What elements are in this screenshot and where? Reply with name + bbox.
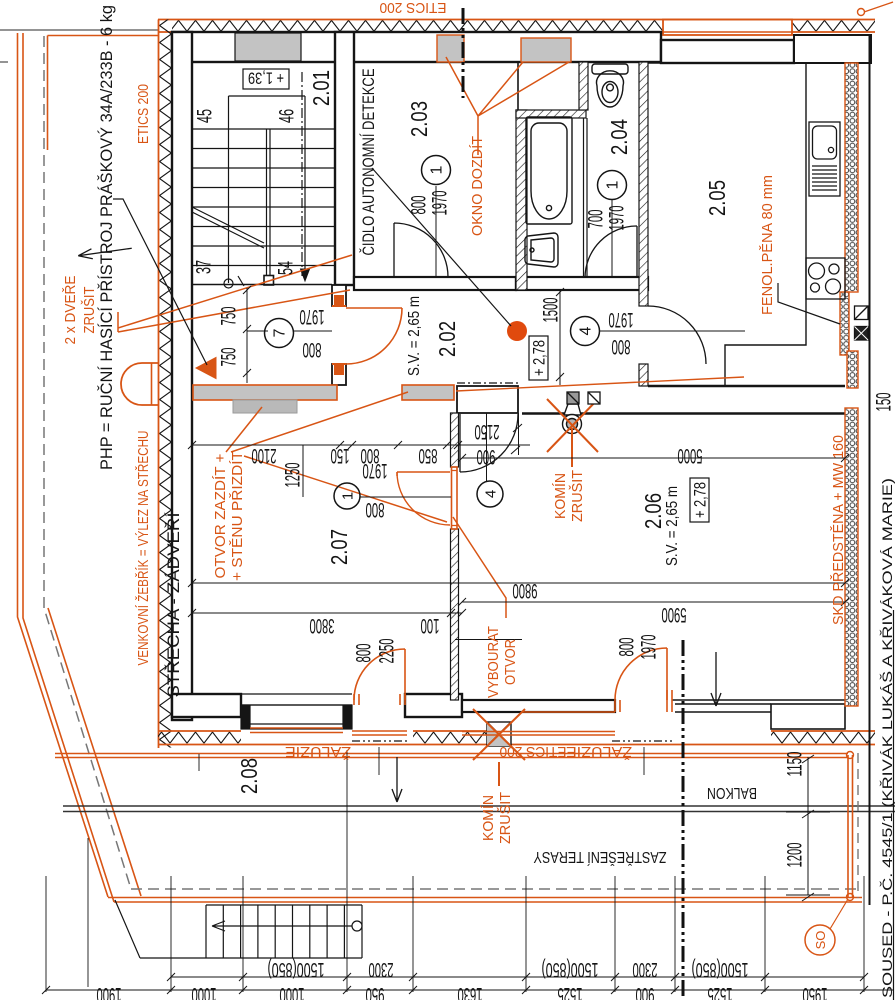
svg-text:1150: 1150 (784, 752, 807, 777)
svg-text:VYBOURAT: VYBOURAT (485, 626, 502, 698)
svg-text:FENOL.PĚNA 80 mm: FENOL.PĚNA 80 mm (759, 175, 776, 315)
svg-text:2.07: 2.07 (326, 529, 352, 565)
svg-text:+ 2,78: + 2,78 (530, 340, 549, 376)
svg-text:PHP = RUČNÍ HASÍCÍ PŘÍSTROJ PR: PHP = RUČNÍ HASÍCÍ PŘÍSTROJ PRÁŠKOVÝ 34A… (97, 5, 116, 470)
svg-text:1000: 1000 (192, 983, 217, 1000)
svg-text:3800: 3800 (310, 614, 335, 637)
svg-text:2.06: 2.06 (640, 493, 666, 529)
svg-text:1525: 1525 (558, 983, 583, 1000)
svg-text:ZRUŠIT: ZRUŠIT (569, 470, 586, 522)
svg-text:OKNO DOZDÍT: OKNO DOZDÍT (469, 136, 486, 236)
svg-text:1000: 1000 (280, 983, 305, 1000)
svg-text:ETICS 200: ETICS 200 (380, 0, 447, 16)
svg-text:1: 1 (429, 165, 446, 174)
svg-text:900: 900 (636, 983, 655, 1000)
svg-text:2250: 2250 (376, 639, 399, 664)
svg-text:ZASTŘEŠENÍ TERASY: ZASTŘEŠENÍ TERASY (533, 848, 666, 867)
svg-text:1500(850): 1500(850) (692, 958, 749, 981)
svg-text:OTVOR ZAZDÍT +: OTVOR ZAZDÍT + (212, 454, 229, 579)
svg-text:1970: 1970 (609, 308, 634, 331)
svg-text:2300: 2300 (633, 958, 658, 981)
svg-text:+ 1,39: + 1,39 (248, 69, 284, 88)
svg-text:1500(850): 1500(850) (268, 958, 325, 981)
svg-text:800: 800 (616, 638, 639, 657)
svg-text:150: 150 (873, 393, 895, 412)
svg-text:2.04: 2.04 (606, 119, 632, 155)
svg-text:1630: 1630 (458, 983, 483, 1000)
svg-text:2300: 2300 (369, 958, 394, 981)
svg-text:2.01: 2.01 (308, 70, 334, 106)
svg-text:2150: 2150 (475, 420, 500, 443)
svg-text:950: 950 (366, 983, 385, 1000)
svg-text:750: 750 (218, 348, 241, 367)
svg-text:800: 800 (353, 644, 376, 663)
svg-text:ETICS 200: ETICS 200 (500, 743, 567, 760)
svg-text:SKD PŘEDSTĚNA + MW 160: SKD PŘEDSTĚNA + MW 160 (830, 435, 847, 625)
svg-text:2.08: 2.08 (236, 758, 262, 794)
svg-text:700: 700 (585, 210, 608, 229)
svg-text:800: 800 (612, 335, 631, 358)
svg-text:+ STĚNU PŘIZDÍT: + STĚNU PŘIZDÍT (229, 451, 246, 581)
svg-text:1: 1 (605, 180, 622, 189)
svg-text:SO: SO (813, 931, 828, 950)
svg-text:2 x DVEŘE: 2 x DVEŘE (62, 276, 79, 345)
svg-text:1950: 1950 (803, 983, 828, 1000)
svg-text:KOMÍN: KOMÍN (552, 473, 569, 519)
svg-text:SOUSED - P.Č. 4545/1 (KŘIVÁK L: SOUSED - P.Č. 4545/1 (KŘIVÁK LUKÁŠ A KŘI… (879, 478, 895, 998)
svg-text:800: 800 (303, 338, 322, 361)
svg-text:5900: 5900 (662, 603, 687, 626)
svg-text:45: 45 (194, 109, 217, 123)
svg-text:2.05: 2.05 (704, 180, 730, 216)
svg-text:4: 4 (578, 326, 595, 335)
svg-text:1500: 1500 (540, 298, 563, 323)
svg-text:S.V. = 2,65 m: S.V. = 2,65 m (406, 296, 423, 376)
svg-text:KOMÍN: KOMÍN (480, 795, 497, 841)
svg-text:1500(850): 1500(850) (542, 958, 599, 981)
svg-text:100: 100 (421, 614, 440, 637)
svg-text:800: 800 (366, 498, 385, 521)
svg-text:BALKON: BALKON (707, 784, 757, 801)
svg-text:ŽALUZIE: ŽALUZIE (566, 743, 632, 760)
svg-text:4: 4 (483, 490, 500, 498)
svg-text:37: 37 (193, 260, 216, 274)
svg-text:1970: 1970 (606, 206, 629, 231)
svg-text:7: 7 (272, 328, 289, 337)
svg-text:1970: 1970 (638, 635, 661, 660)
svg-text:1: 1 (340, 492, 357, 500)
svg-text:ZRUŠIT: ZRUŠIT (497, 792, 514, 844)
svg-text:1970: 1970 (363, 459, 388, 482)
svg-text:2.02: 2.02 (434, 321, 460, 357)
svg-text:2.03: 2.03 (406, 101, 432, 137)
svg-text:STŘECHA - ZÁDVEŘÍ: STŘECHA - ZÁDVEŘÍ (164, 512, 183, 697)
svg-text:ČIDLO AUTONOMNÍ DETEKCE: ČIDLO AUTONOMNÍ DETEKCE (359, 69, 378, 256)
svg-text:900: 900 (477, 445, 496, 468)
svg-text:150: 150 (331, 444, 350, 467)
svg-text:+ 2,78: + 2,78 (691, 482, 710, 518)
svg-text:5000: 5000 (678, 444, 703, 467)
svg-text:2100: 2100 (252, 444, 277, 467)
svg-text:9800: 9800 (513, 579, 538, 602)
svg-text:OTVOR: OTVOR (502, 639, 519, 685)
svg-text:850: 850 (419, 444, 438, 467)
svg-text:54: 54 (275, 261, 298, 275)
svg-text:46: 46 (276, 109, 299, 123)
svg-text:800: 800 (408, 196, 431, 215)
svg-text:1200: 1200 (784, 843, 807, 868)
svg-text:1525: 1525 (708, 983, 733, 1000)
svg-text:1900: 1900 (97, 983, 122, 1000)
svg-text:S.V. = 2,65 m: S.V. = 2,65 m (664, 486, 681, 566)
svg-text:1250: 1250 (282, 463, 305, 488)
svg-text:1970: 1970 (429, 191, 452, 216)
svg-text:750: 750 (218, 307, 241, 326)
svg-text:VENKOVNÍ ŽEBŘÍK = VÝLEZ NA STŘ: VENKOVNÍ ŽEBŘÍK = VÝLEZ NA STŘECHU (135, 431, 152, 666)
svg-text:ETICS 200: ETICS 200 (135, 84, 152, 144)
svg-text:ŽALUZIE: ŽALUZIE (285, 743, 351, 760)
svg-text:ZRUŠIT: ZRUŠIT (81, 287, 98, 334)
svg-text:1970: 1970 (300, 305, 325, 328)
